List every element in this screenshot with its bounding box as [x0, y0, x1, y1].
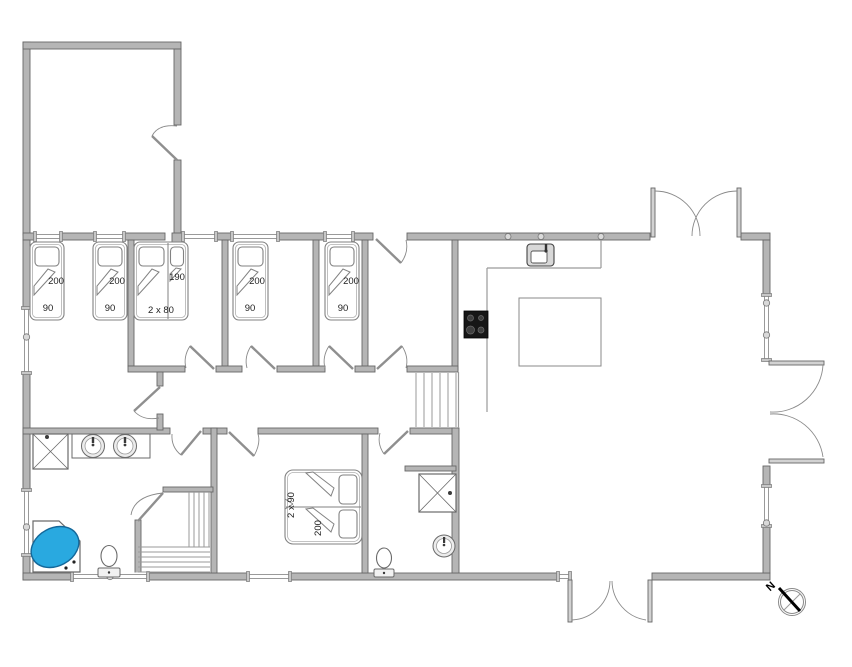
toilet-bowl-icon — [377, 548, 392, 568]
window-cap — [34, 232, 37, 242]
window-gap — [95, 233, 124, 241]
door-panel — [190, 346, 214, 369]
wc-basin-tap-icon — [443, 537, 445, 543]
window-gap — [183, 233, 216, 241]
french-door-panel — [769, 459, 824, 463]
stove-burner — [479, 316, 484, 321]
door-panel — [377, 346, 402, 369]
french-door-arc — [770, 414, 823, 457]
door-swing-arc — [401, 240, 407, 263]
wall-segment — [23, 42, 30, 235]
wall-segment — [741, 233, 770, 240]
door-panel — [376, 239, 401, 263]
door-panel — [251, 346, 275, 369]
window-mullion — [23, 334, 29, 340]
door-panel — [329, 346, 353, 369]
window-cap — [215, 232, 218, 242]
bed-pillow — [171, 247, 184, 266]
dimension-label: 90 — [245, 303, 256, 314]
bed-pillow — [339, 510, 357, 538]
toilet-bowl-icon — [101, 546, 117, 567]
dimension-label: 90 — [105, 303, 116, 314]
window-cap — [22, 489, 32, 492]
floor-plan-canvas: 20090200901902 x 8020090200902 x 90200N — [0, 0, 852, 667]
dimension-label: 200 — [313, 520, 324, 536]
window-cap — [123, 232, 126, 242]
wall-joint-marker — [598, 234, 604, 240]
window-gap — [23, 490, 31, 555]
window-cap — [324, 232, 327, 242]
window-gap — [35, 233, 61, 241]
wall-segment — [313, 240, 319, 366]
stove-burner — [478, 327, 484, 333]
window-cap — [94, 232, 97, 242]
french-door-arc — [572, 581, 610, 620]
wall-segment — [277, 366, 325, 372]
french-door-arc — [612, 581, 646, 620]
door-swing-arc — [324, 346, 329, 368]
window-cap — [182, 232, 185, 242]
beds — [30, 242, 362, 544]
window-mullion — [763, 520, 769, 526]
wall-segment — [355, 366, 375, 372]
wall-segment — [157, 372, 163, 386]
wall-segment — [23, 42, 181, 49]
window-mullion — [763, 300, 769, 306]
wc-basin-drain — [443, 544, 446, 547]
shower-tap-icon — [45, 435, 49, 439]
wall-joint-marker — [538, 234, 544, 240]
compass: N — [764, 580, 805, 616]
wall-segment — [163, 487, 213, 492]
wall-segment — [128, 240, 134, 366]
french-door-panel — [769, 361, 824, 365]
stove-burner — [467, 326, 475, 334]
wall-segment — [157, 414, 163, 430]
wall-segment — [23, 428, 170, 434]
sink-tap-icon — [92, 437, 94, 443]
window-cap — [247, 572, 250, 582]
floor-plan-svg: 20090200901902 x 8020090200902 x 90200N — [0, 0, 852, 667]
wall-segment — [211, 428, 217, 573]
wall-segment — [222, 240, 228, 366]
door-panel — [152, 136, 177, 160]
window-cap — [277, 232, 280, 242]
wall-segment — [174, 49, 181, 125]
wall-segment — [362, 240, 368, 366]
window-gap — [232, 233, 278, 241]
door-swing-arc — [254, 434, 259, 456]
bed-pillow — [339, 475, 357, 504]
dimension-label: 190 — [169, 272, 185, 283]
bed-pillow — [35, 247, 59, 266]
door-swing-arc — [172, 434, 181, 455]
wall-segment — [216, 233, 232, 240]
kitchen-island — [519, 298, 601, 366]
dimension-label: 2 x 80 — [148, 305, 174, 316]
door-panel — [229, 432, 254, 456]
dimension-label: 200 — [109, 276, 125, 287]
window-cap — [557, 572, 560, 582]
sink-drain-icon — [124, 444, 127, 447]
wall-segment — [290, 573, 558, 580]
french-door-panel — [651, 188, 655, 237]
door-swing-arc — [379, 433, 384, 454]
bed-pillow — [98, 247, 122, 266]
wall-segment — [407, 366, 458, 372]
wall-segment — [652, 573, 770, 580]
window-cap — [762, 485, 772, 488]
bed-pillow — [330, 247, 354, 266]
wall-segment — [23, 573, 72, 580]
french-door-arc — [655, 191, 700, 236]
door-swing-arc — [152, 126, 177, 136]
wall-segment — [61, 233, 95, 240]
wall-segment — [763, 240, 770, 295]
door-panel — [134, 387, 160, 411]
wall-segment — [353, 233, 373, 240]
toilet-flush-dot — [108, 571, 110, 573]
window-cap — [352, 232, 355, 242]
wall-segment — [23, 240, 30, 308]
wall-segment — [124, 233, 165, 240]
dimension-label: 2 x 90 — [286, 492, 297, 518]
door-swing-arc — [246, 346, 251, 368]
wall-segment — [410, 428, 458, 434]
door-swing-arc — [402, 346, 407, 368]
french-door-panel — [737, 188, 741, 237]
window-cap — [22, 372, 32, 375]
dimension-label: 90 — [338, 303, 349, 314]
door-panel — [138, 493, 163, 521]
compass-north-label: N — [764, 580, 778, 594]
kitchen-tap-icon — [545, 244, 547, 250]
window-cap — [762, 294, 772, 297]
dimension-label: 200 — [343, 276, 359, 287]
shower-tap-icon — [448, 491, 452, 495]
dimension-label: 200 — [48, 276, 64, 287]
wall-segment — [405, 466, 456, 471]
door-panel — [384, 431, 408, 454]
window-mullion — [763, 332, 769, 338]
wall-segment — [148, 573, 248, 580]
kitchen-tap-dot — [544, 249, 547, 252]
wall-joint-marker — [505, 234, 511, 240]
wall-segment — [763, 526, 770, 573]
window-cap — [289, 572, 292, 582]
door-panel — [181, 431, 201, 455]
sink-tap-icon — [124, 437, 126, 443]
toilet-flush-dot — [383, 572, 385, 574]
wall-segment — [407, 233, 650, 240]
door-swing-arc — [134, 411, 159, 419]
wall-segment — [174, 160, 181, 240]
dimension-label: 90 — [43, 303, 54, 314]
window-gap — [325, 233, 353, 241]
sink-drain-icon — [92, 444, 95, 447]
window-cap — [147, 572, 150, 582]
stove-burner — [468, 315, 474, 321]
dimension-label: 200 — [249, 276, 265, 287]
wall-segment — [278, 233, 325, 240]
wall-segment — [23, 430, 30, 490]
window-cap — [71, 572, 74, 582]
window-cap — [22, 554, 32, 557]
kitchen-sink-bowl — [531, 251, 547, 263]
wall-segment — [258, 428, 378, 434]
wall-segment — [216, 366, 242, 372]
wall-segment — [452, 240, 458, 370]
french-door-panel — [648, 580, 652, 622]
bed-pillow — [238, 247, 263, 266]
door-swing-arc — [185, 346, 190, 368]
wall-segment — [362, 434, 368, 573]
tub-tap-dot — [64, 566, 67, 569]
french-door-arc — [692, 191, 737, 236]
stove-icon — [464, 311, 488, 338]
french-door-arc — [770, 365, 823, 412]
window-cap — [231, 232, 234, 242]
tub-tap-dot — [72, 560, 75, 563]
wall-segment — [128, 366, 185, 372]
bed-pillow — [139, 247, 164, 266]
window-cap — [60, 232, 63, 242]
french-door-panel — [568, 580, 572, 622]
doors — [131, 126, 824, 622]
window-mullion — [23, 524, 29, 530]
window-gap — [248, 573, 290, 581]
wall-segment — [763, 466, 770, 486]
